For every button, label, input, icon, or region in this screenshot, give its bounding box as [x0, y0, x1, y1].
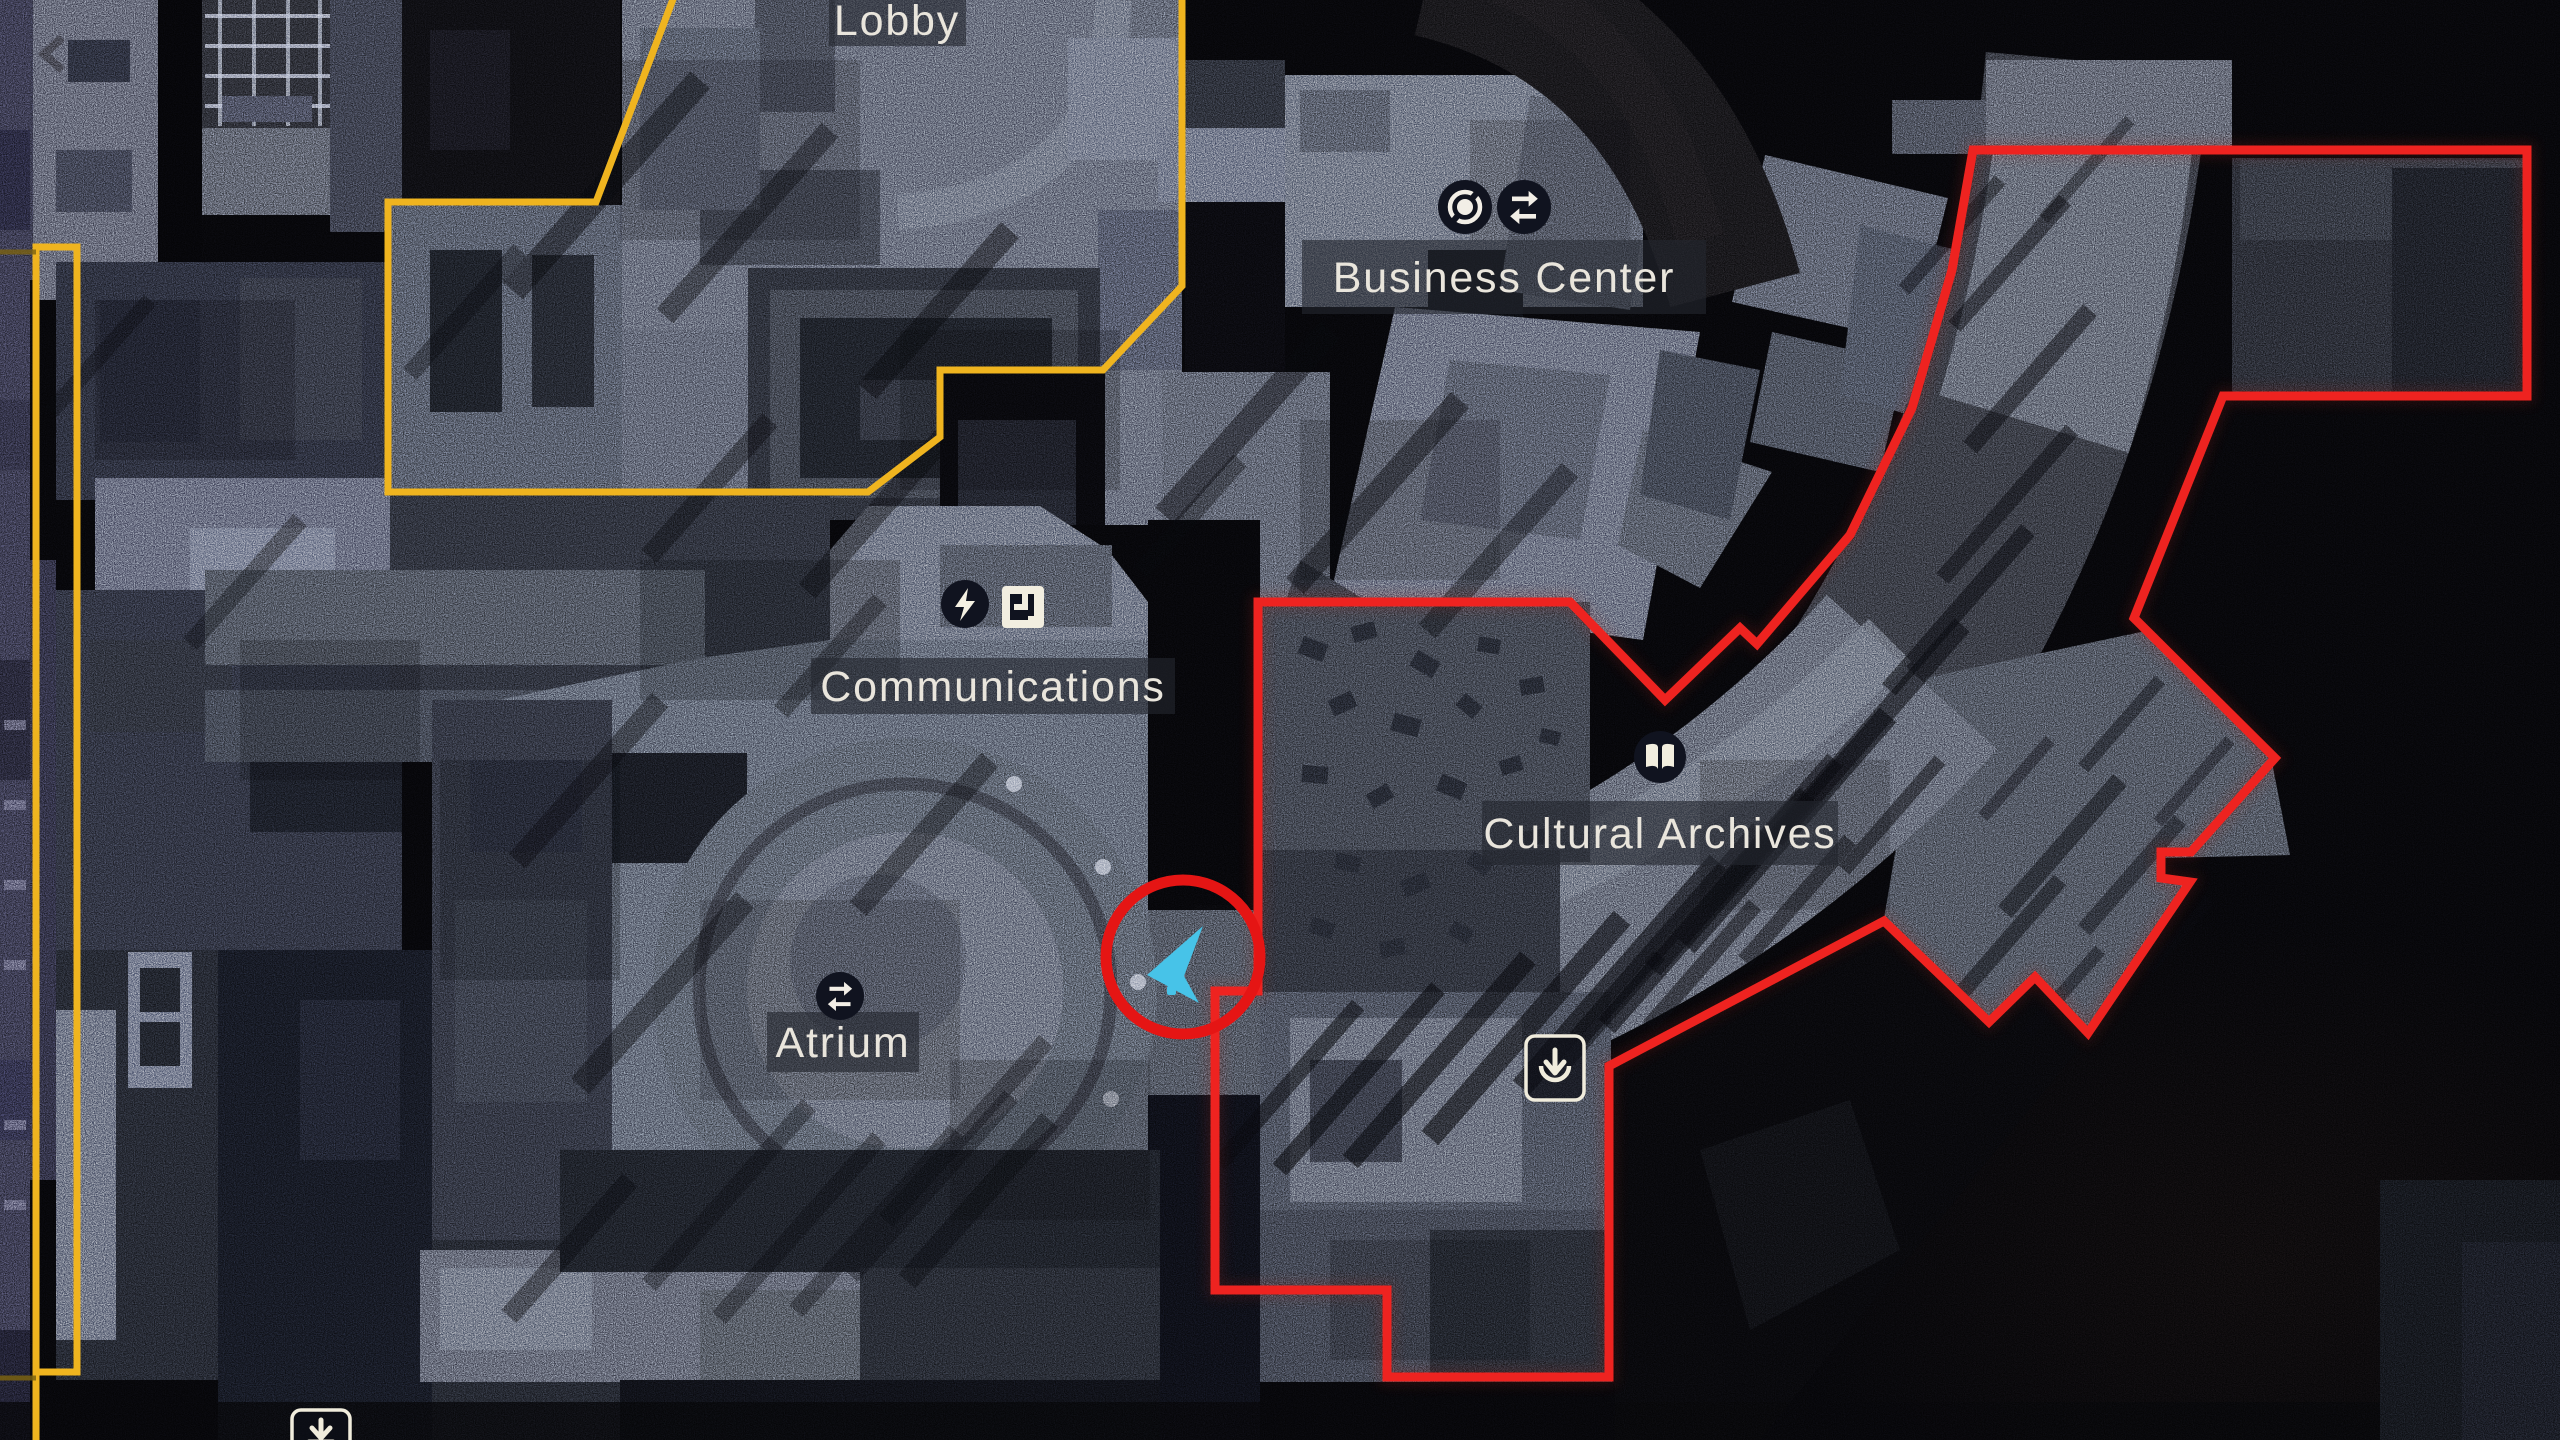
svg-text:Atrium: Atrium	[775, 1019, 910, 1067]
svg-text:Business Center: Business Center	[1333, 254, 1676, 302]
svg-text:Lobby: Lobby	[834, 0, 960, 45]
svg-text:Communications: Communications	[820, 663, 1165, 711]
svg-text:Cultural Archives: Cultural Archives	[1483, 810, 1836, 858]
